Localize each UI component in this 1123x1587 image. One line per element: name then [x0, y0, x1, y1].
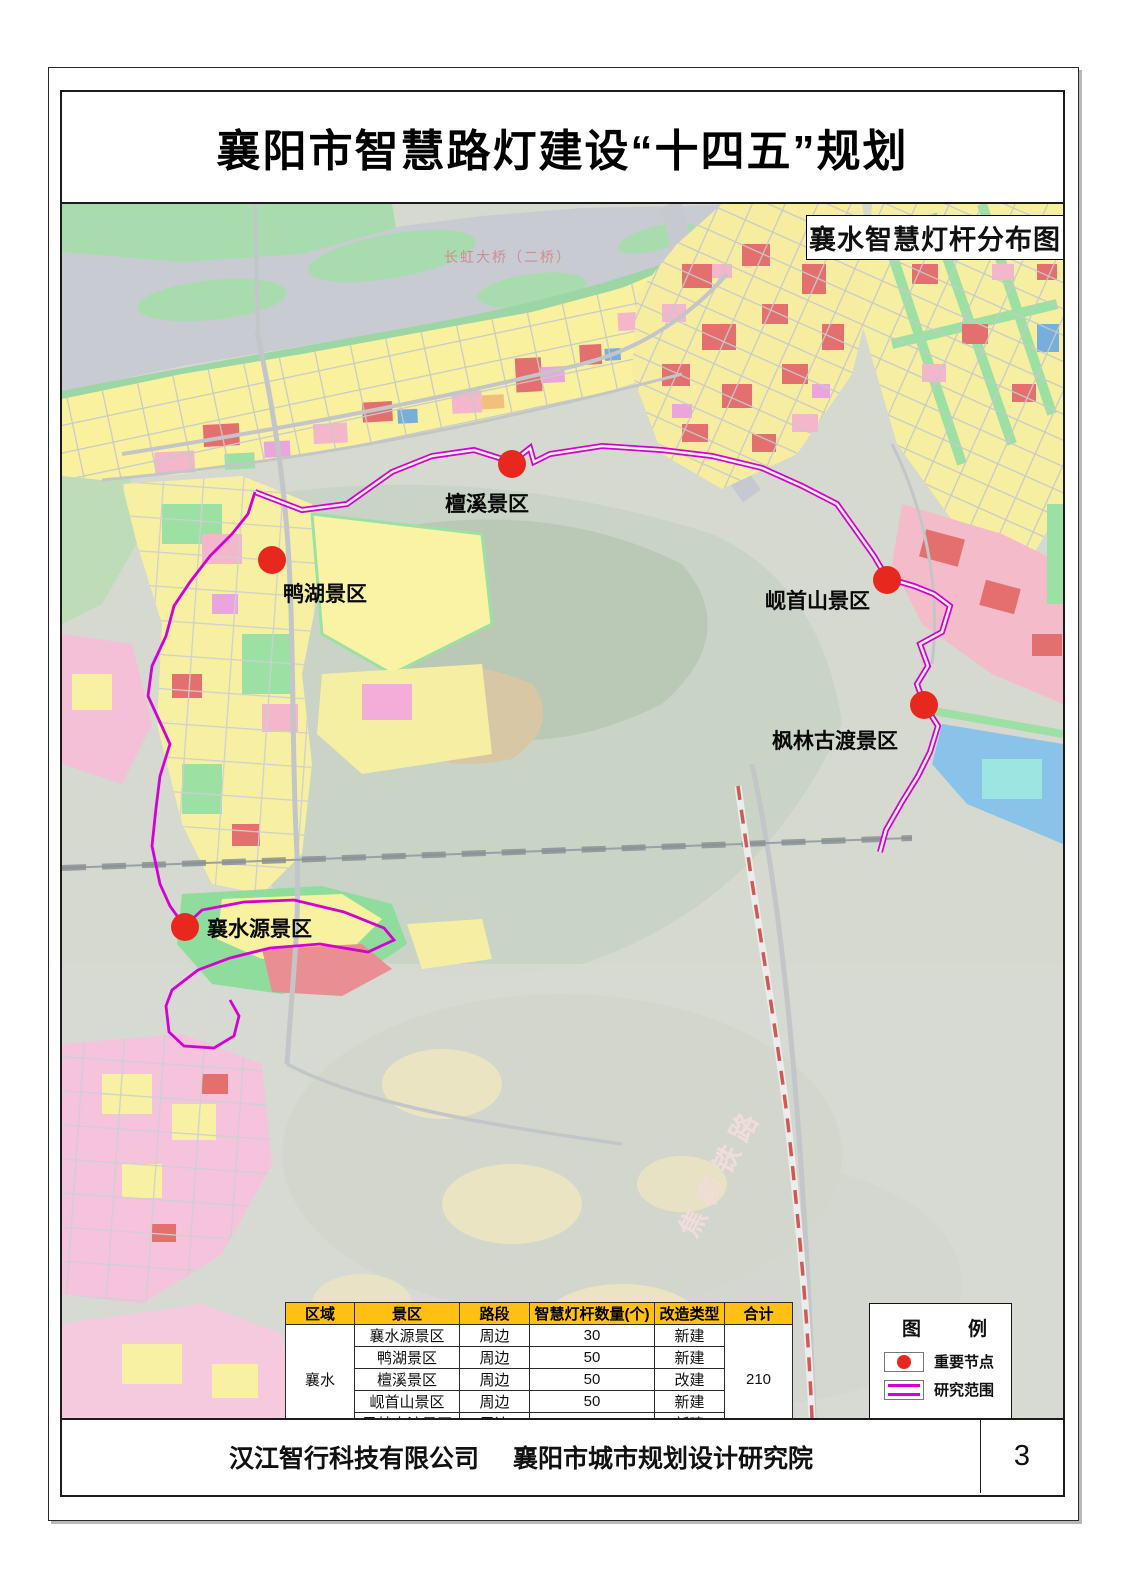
legend-title: 图 例: [902, 1314, 1011, 1341]
col-header: 区域: [286, 1303, 355, 1325]
road-cell: 周边: [460, 1369, 530, 1391]
node-dot: [171, 913, 199, 941]
legend-label: 重要节点: [934, 1351, 994, 1372]
map-title: 襄水智慧灯杆分布图: [809, 218, 1061, 257]
company-2: 襄阳市城市规划设计研究院: [513, 1439, 813, 1475]
footer: 汉江智行科技有限公司 襄阳市城市规划设计研究院 3: [62, 1420, 1063, 1493]
table-row: 岘首山景区 周边 50 新建: [286, 1391, 793, 1413]
node-dot: [873, 566, 901, 594]
node-swatch: [884, 1352, 924, 1372]
plan-sheet: 襄阳市智慧路灯建设“十四五”规划: [0, 0, 1123, 1587]
count-cell: 50: [530, 1391, 655, 1413]
table-row: 凤林古渡景区 周边 30 新建: [286, 1413, 793, 1421]
col-header: 合计: [725, 1303, 793, 1325]
scenic-cell: 襄水源景区: [355, 1325, 460, 1347]
legend: 图 例 重要节点 研究范围: [869, 1303, 1012, 1420]
scenic-cell: 凤林古渡景区: [355, 1413, 460, 1421]
company-1: 汉江智行科技有限公司: [229, 1439, 479, 1475]
important-node-icon: [897, 1355, 911, 1369]
node-dot: [258, 546, 286, 574]
count-cell: 30: [530, 1413, 655, 1421]
marker-label: 岘首山景区: [765, 585, 870, 615]
table-row: 檀溪景区 周边 50 改建: [286, 1369, 793, 1391]
map-title-box: 襄水智慧灯杆分布图: [806, 215, 1063, 260]
lamp-post-table: 区域 景区 路段 智慧灯杆数量(个) 改造类型 合计 襄水 襄水源景区 周边 3…: [285, 1302, 793, 1420]
count-cell: 50: [530, 1347, 655, 1369]
type-cell: 新建: [655, 1413, 725, 1421]
count-cell: 50: [530, 1369, 655, 1391]
study-range-icon: [888, 1384, 920, 1396]
count-cell: 30: [530, 1325, 655, 1347]
type-cell: 新建: [655, 1347, 725, 1369]
road-cell: 周边: [460, 1391, 530, 1413]
col-header: 智慧灯杆数量(个): [530, 1303, 655, 1325]
table-row: 鸭湖景区 周边 50 新建: [286, 1347, 793, 1369]
table-header-row: 区域 景区 路段 智慧灯杆数量(个) 改造类型 合计: [286, 1303, 793, 1325]
road-cell: 周边: [460, 1413, 530, 1421]
col-header: 路段: [460, 1303, 530, 1325]
bridge-label: 长虹大桥（二桥）: [444, 247, 572, 267]
map: 襄水智慧灯杆分布图 长虹大桥（二桥） 焦柳铁路 檀溪景区 鸭湖景区 岘首山景区 …: [62, 202, 1063, 1420]
total-cell: 210: [725, 1325, 793, 1421]
col-header: 景区: [355, 1303, 460, 1325]
region-cell: 襄水: [286, 1325, 355, 1421]
footer-companies: 汉江智行科技有限公司 襄阳市城市规划设计研究院: [62, 1420, 980, 1493]
inner-frame: 襄阳市智慧路灯建设“十四五”规划: [60, 90, 1065, 1497]
map-graphic: [62, 204, 1063, 1418]
page-title: 襄阳市智慧路灯建设“十四五”规划: [217, 115, 909, 179]
scenic-cell: 檀溪景区: [355, 1369, 460, 1391]
type-cell: 新建: [655, 1325, 725, 1347]
node-dot: [910, 691, 938, 719]
legend-item-node: 重要节点: [884, 1351, 1011, 1372]
page-number: 3: [980, 1420, 1063, 1493]
road-cell: 周边: [460, 1325, 530, 1347]
legend-label: 研究范围: [934, 1379, 994, 1400]
boundary-swatch: [884, 1380, 924, 1400]
marker-label: 襄水源景区: [207, 913, 312, 943]
node-dot: [498, 450, 526, 478]
marker-label: 鸭湖景区: [283, 578, 367, 608]
type-cell: 改建: [655, 1369, 725, 1391]
scenic-cell: 岘首山景区: [355, 1391, 460, 1413]
marker-label: 枫林古渡景区: [772, 725, 898, 755]
type-cell: 新建: [655, 1391, 725, 1413]
table-row: 襄水 襄水源景区 周边 30 新建 210: [286, 1325, 793, 1347]
scenic-cell: 鸭湖景区: [355, 1347, 460, 1369]
road-cell: 周边: [460, 1347, 530, 1369]
marker-label: 檀溪景区: [445, 488, 529, 518]
legend-item-boundary: 研究范围: [884, 1379, 1011, 1400]
col-header: 改造类型: [655, 1303, 725, 1325]
title-bar: 襄阳市智慧路灯建设“十四五”规划: [62, 92, 1063, 202]
